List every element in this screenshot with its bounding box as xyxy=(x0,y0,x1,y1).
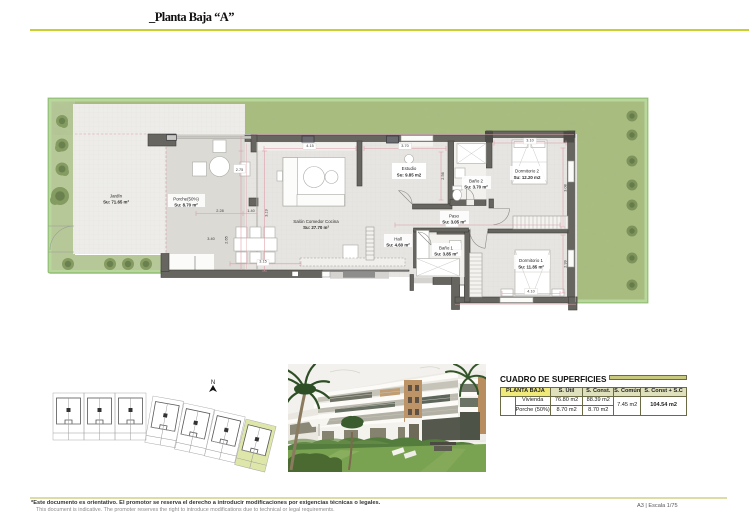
svg-text:3.08: 3.08 xyxy=(564,184,568,191)
svg-text:Su: 8.70 m²: Su: 8.70 m² xyxy=(174,203,198,208)
svg-text:2.56: 2.56 xyxy=(441,172,445,179)
svg-text:Baño 2: Baño 2 xyxy=(469,179,483,184)
svg-text:2.28: 2.28 xyxy=(216,209,223,213)
svg-text:1.40: 1.40 xyxy=(247,209,254,213)
svg-text:Dormitorio 2: Dormitorio 2 xyxy=(515,169,539,174)
svg-text:Baño 1: Baño 1 xyxy=(439,246,453,251)
svg-text:Jardín: Jardín xyxy=(110,194,123,199)
svg-text:Dormitorio 1: Dormitorio 1 xyxy=(519,258,543,263)
svg-text:Porche(50%): Porche(50%) xyxy=(173,197,199,202)
svg-text:Su: 27.70 m²: Su: 27.70 m² xyxy=(303,225,329,230)
svg-text:Su: 11.85 m²: Su: 11.85 m² xyxy=(518,265,544,270)
svg-text:Su: 3.70 m²: Su: 3.70 m² xyxy=(464,185,488,190)
svg-text:Su: 12.20 m2: Su: 12.20 m2 xyxy=(514,175,541,180)
svg-text:4.10: 4.10 xyxy=(527,290,534,294)
svg-text:Su: 71.65 m²: Su: 71.65 m² xyxy=(103,200,129,205)
svg-text:Salón Comedor Cocina: Salón Comedor Cocina xyxy=(293,219,339,224)
svg-text:3.40: 3.40 xyxy=(207,237,214,241)
svg-text:3.70: 3.70 xyxy=(401,144,408,148)
svg-text:Paso: Paso xyxy=(449,214,460,219)
svg-text:3.15: 3.15 xyxy=(259,260,266,264)
svg-text:Su: 3.85 m²: Su: 3.85 m² xyxy=(434,252,458,257)
svg-text:Su: 4.60 m²: Su: 4.60 m² xyxy=(386,243,410,248)
svg-text:Hall: Hall xyxy=(394,237,402,242)
svg-text:3.19: 3.19 xyxy=(265,209,269,216)
svg-text:Estudio: Estudio xyxy=(402,166,417,171)
svg-text:4.15: 4.15 xyxy=(306,144,313,148)
svg-text:2.99: 2.99 xyxy=(564,260,568,267)
svg-text:2.65: 2.65 xyxy=(225,236,229,243)
svg-text:2.75: 2.75 xyxy=(236,168,243,172)
svg-text:Su: 9.85 m2: Su: 9.85 m2 xyxy=(397,173,422,178)
svg-text:3.10: 3.10 xyxy=(526,139,533,143)
svg-text:Su: 3.05 m²: Su: 3.05 m² xyxy=(442,220,466,225)
